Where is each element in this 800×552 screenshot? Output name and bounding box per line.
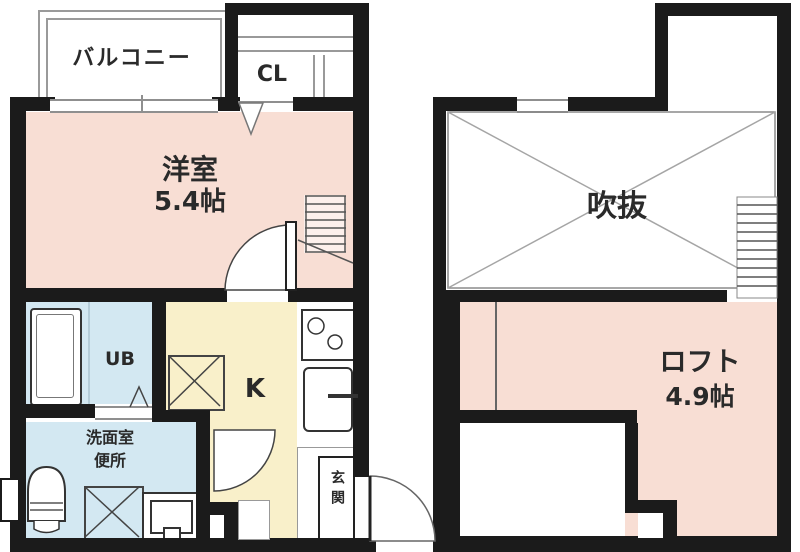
washroom-line2: 便所 bbox=[50, 449, 170, 472]
closet-opening-line bbox=[238, 101, 293, 103]
balcony-window bbox=[50, 99, 218, 113]
f1-right-wall bbox=[353, 3, 369, 477]
washroom-line1: 洗面室 bbox=[50, 426, 170, 449]
f1-mid-wall-right bbox=[288, 288, 353, 302]
f2-right-wall bbox=[777, 3, 791, 552]
f1-bottom-wall bbox=[10, 538, 376, 552]
entrance-nub-wall-v bbox=[224, 515, 238, 552]
entrance-label: 玄関 bbox=[327, 470, 347, 510]
washroom-label: 洗面室 便所 bbox=[50, 426, 170, 472]
kitchen-sink bbox=[303, 367, 353, 432]
f2-window bbox=[517, 99, 568, 113]
loft-name: ロフト bbox=[630, 346, 770, 380]
f2-upper-room-left-wall bbox=[655, 3, 668, 98]
western-room-name: 洋室 bbox=[100, 153, 280, 186]
f2-top-wall-right bbox=[568, 97, 668, 111]
entrance-nub-wall-h bbox=[210, 502, 238, 515]
loft-niche bbox=[638, 513, 663, 538]
unit-bath-label: UB bbox=[90, 348, 150, 370]
unit-bath-threshold bbox=[95, 406, 152, 420]
void-label: 吹抜 bbox=[542, 181, 692, 225]
f2-bottom-wall bbox=[433, 536, 790, 552]
closet-label: CL bbox=[237, 62, 307, 87]
bath-kitchen-wall bbox=[152, 288, 166, 422]
entrance-step-box bbox=[238, 500, 270, 540]
loft-label: ロフト 4.9帖 bbox=[630, 346, 770, 414]
f1-top-wall-left bbox=[10, 97, 55, 111]
f1-top-wall-right bbox=[293, 97, 353, 111]
loft-niche-wall-v bbox=[663, 513, 677, 538]
loft-partition-line bbox=[495, 302, 497, 410]
washroom-right-wall bbox=[196, 410, 210, 552]
closet-pole bbox=[313, 55, 325, 99]
f2-upper-room-top-wall bbox=[655, 3, 790, 16]
washing-machine-pan bbox=[84, 486, 144, 542]
kitchen-label: K bbox=[235, 374, 275, 404]
loft-open-top-wall bbox=[443, 410, 637, 423]
unit-bath-bottom-wall bbox=[10, 404, 95, 418]
floorplan-canvas: バルコニー CL 洋室 5.4帖 UB K 洗面室 便所 玄関 吹抜 ロフト 4… bbox=[0, 0, 800, 552]
void-loft-wall bbox=[446, 290, 727, 302]
balcony-label: バルコニー bbox=[38, 40, 226, 72]
stair-landing bbox=[727, 288, 777, 302]
stove bbox=[301, 309, 355, 361]
entrance-door-arc bbox=[370, 476, 435, 541]
kitchen-refrigerator-space bbox=[168, 355, 225, 411]
pipe-space-box bbox=[0, 478, 20, 522]
bathtub-inner-line bbox=[36, 314, 74, 398]
western-room-size: 5.4帖 bbox=[100, 186, 280, 219]
loft-size: 4.9帖 bbox=[630, 380, 770, 414]
loft-open-area bbox=[460, 423, 625, 536]
western-room-label: 洋室 5.4帖 bbox=[100, 153, 280, 219]
loft-niche-wall-h bbox=[625, 500, 677, 513]
closet-shelf-line-2 bbox=[238, 50, 353, 52]
f2-left-wall-upper bbox=[433, 97, 446, 290]
closet-top-wall bbox=[225, 3, 368, 15]
f1-mid-wall-left bbox=[10, 288, 227, 302]
closet-shelf-line-1 bbox=[238, 36, 353, 38]
entrance-niche bbox=[210, 515, 224, 538]
